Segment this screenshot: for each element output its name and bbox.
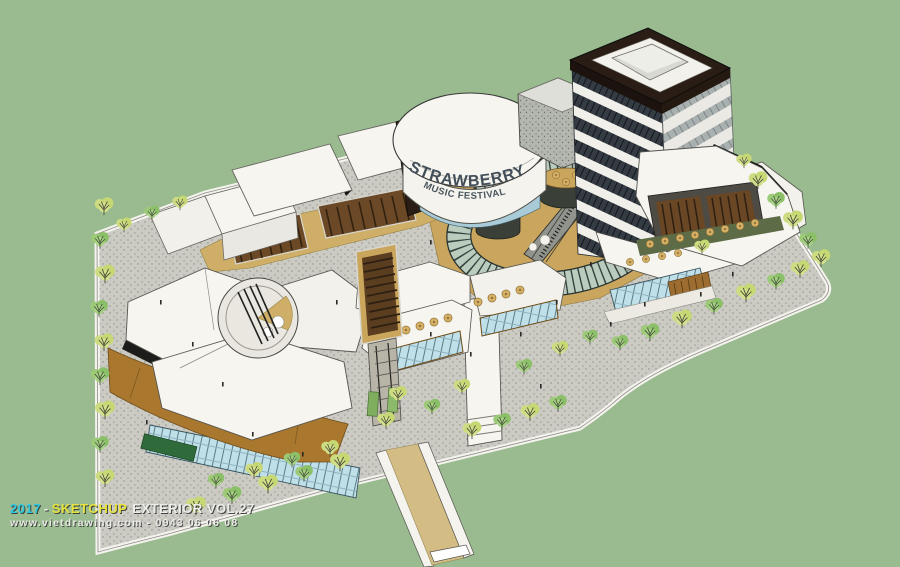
scene-svg: STRAWBERRY MUSIC FESTIVAL xyxy=(0,0,900,567)
umbrella xyxy=(626,258,633,265)
umbrella xyxy=(474,298,482,306)
umbrella xyxy=(416,322,424,330)
watermark-title: EXTERIOR VOL.27 xyxy=(132,501,254,516)
umbrella xyxy=(751,219,759,227)
umbrella xyxy=(516,286,524,294)
umbrella xyxy=(642,255,649,262)
umbrella xyxy=(646,240,654,248)
umbrella xyxy=(658,252,665,259)
atrium-courtyard xyxy=(218,278,298,358)
umbrella xyxy=(444,314,452,322)
plaza-table xyxy=(540,235,550,245)
watermark-separator: - xyxy=(44,501,49,516)
umbrella xyxy=(676,234,684,242)
umbrella xyxy=(562,178,569,185)
umbrella xyxy=(430,318,438,326)
umbrella xyxy=(674,249,681,256)
umbrella xyxy=(721,225,729,233)
watermark-year: 2017 xyxy=(10,501,41,516)
watermark: 2017-SKETCHUPEXTERIOR VOL.27 www.vietdra… xyxy=(10,502,255,530)
watermark-line1: 2017-SKETCHUPEXTERIOR VOL.27 xyxy=(10,502,255,516)
umbrella xyxy=(691,231,699,239)
sketchup-render: STRAWBERRY MUSIC FESTIVAL xyxy=(0,0,900,567)
umbrella xyxy=(402,326,410,334)
umbrella xyxy=(488,294,496,302)
plaza-table xyxy=(529,243,537,251)
watermark-brand: SKETCHUP xyxy=(52,501,128,516)
watermark-line2: www.vietdrawing.com - 0943 06 06 08 xyxy=(10,516,255,530)
umbrella xyxy=(736,222,744,230)
planter xyxy=(367,392,379,417)
umbrella xyxy=(661,237,669,245)
umbrella xyxy=(706,228,714,236)
umbrella xyxy=(502,290,510,298)
umbrella xyxy=(552,171,559,178)
